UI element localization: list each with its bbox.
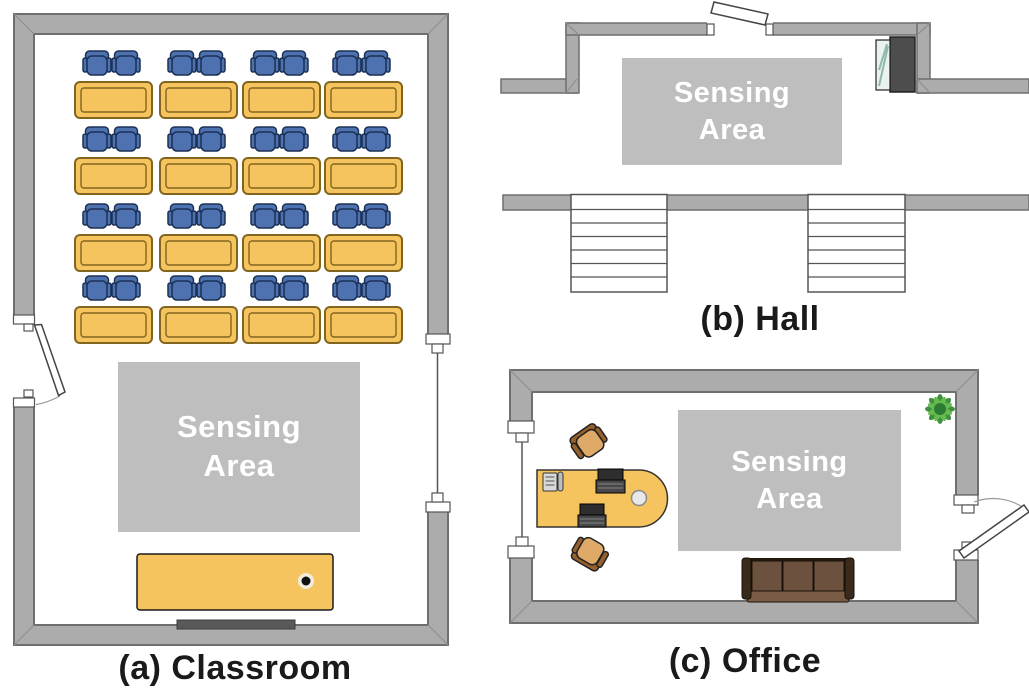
desk-chair-unit	[75, 204, 152, 271]
door-leaf	[711, 2, 768, 25]
desk-chair-unit	[325, 51, 402, 118]
laptop	[578, 504, 606, 527]
sensing-area-text: Sensing Area	[715, 444, 865, 517]
couch	[742, 558, 854, 602]
sensing-area-label: Sensing Area	[118, 362, 360, 532]
phone	[543, 472, 563, 491]
teacher-desk	[137, 554, 333, 610]
caption-hall: (b) Hall	[630, 300, 890, 339]
desk-chair-unit	[243, 127, 320, 194]
desk-chair-unit	[160, 276, 237, 343]
desk-chair-unit	[160, 127, 237, 194]
plant	[925, 394, 955, 424]
laptop	[596, 469, 625, 493]
sensing-area-text: Sensing Area	[164, 408, 314, 486]
sensing-area-label: Sensing Area	[678, 410, 901, 551]
desk-chair-unit	[325, 127, 402, 194]
desk-chair-unit	[75, 51, 152, 118]
desk-chair-unit	[325, 276, 402, 343]
office-window	[508, 421, 534, 558]
desk-chair-unit	[325, 204, 402, 271]
floorplan-figure: Sensing Area Sensing Area Sensing Area (…	[0, 0, 1029, 700]
staircase	[808, 194, 905, 293]
vending-machine	[876, 37, 915, 92]
office-door	[954, 495, 1029, 560]
sensor-dot	[302, 577, 311, 586]
desk-chair-unit	[75, 276, 152, 343]
hall-door	[707, 2, 773, 36]
sensing-area-text: Sensing Area	[657, 75, 807, 148]
desk-chair-unit	[243, 51, 320, 118]
sensing-area-label: Sensing Area	[622, 58, 842, 165]
caption-classroom: (a) Classroom	[40, 649, 430, 688]
desk-chair-unit	[243, 204, 320, 271]
stool	[632, 491, 647, 506]
desk-chair-unit	[75, 127, 152, 194]
desk-chair-unit	[243, 276, 320, 343]
board	[177, 620, 295, 629]
staircase	[571, 194, 667, 293]
classroom-floorplan	[0, 0, 460, 700]
desk-chair-unit	[160, 204, 237, 271]
classroom-window	[426, 334, 450, 512]
desk-chair-unit	[160, 51, 237, 118]
caption-office: (c) Office	[630, 642, 860, 681]
